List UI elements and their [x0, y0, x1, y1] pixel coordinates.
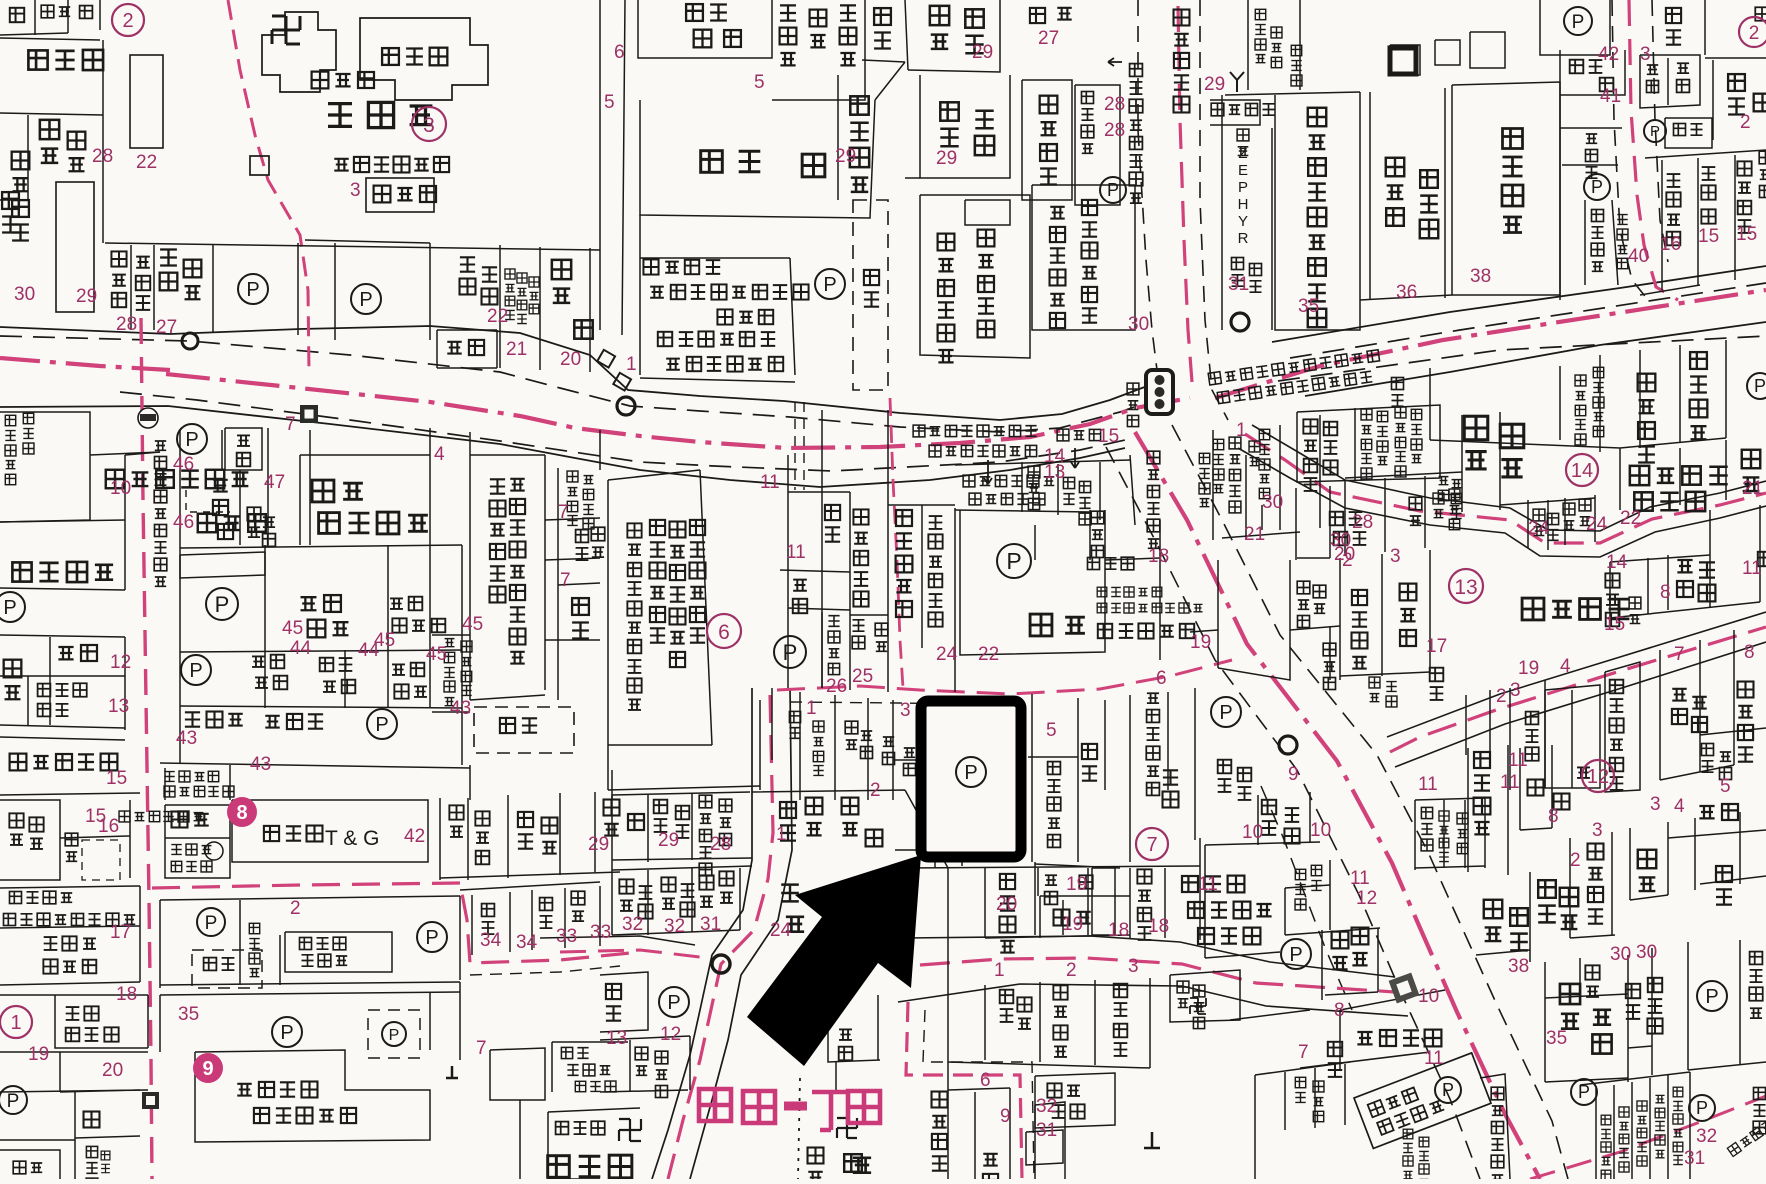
svg-text:11: 11 — [1500, 772, 1520, 793]
svg-text:3: 3 — [1650, 794, 1661, 815]
svg-text:43: 43 — [450, 698, 471, 719]
svg-text:P: P — [667, 992, 680, 1014]
svg-text:5: 5 — [754, 72, 765, 93]
svg-text:2: 2 — [1740, 112, 1751, 133]
svg-text:15: 15 — [1698, 226, 1719, 247]
svg-text:3: 3 — [1390, 546, 1401, 567]
svg-text:38: 38 — [1470, 266, 1491, 287]
svg-text:7: 7 — [1674, 644, 1685, 665]
svg-text:7: 7 — [1146, 834, 1157, 856]
svg-text:44: 44 — [358, 640, 380, 661]
svg-text:31: 31 — [1228, 274, 1249, 295]
svg-text:P: P — [185, 429, 198, 451]
svg-text:22: 22 — [487, 306, 508, 327]
svg-text:14: 14 — [1044, 446, 1066, 467]
svg-text:P: P — [1219, 702, 1232, 724]
svg-text:8: 8 — [236, 802, 247, 824]
svg-text:40: 40 — [1628, 246, 1649, 267]
svg-text:P: P — [1572, 12, 1585, 33]
svg-text:R: R — [1238, 230, 1249, 247]
svg-text:19: 19 — [1062, 914, 1083, 935]
svg-text:1: 1 — [776, 824, 787, 845]
svg-text:30: 30 — [1636, 942, 1657, 963]
svg-text:31: 31 — [1684, 1148, 1705, 1169]
svg-text:19: 19 — [1066, 874, 1087, 895]
svg-text:46: 46 — [173, 512, 194, 533]
svg-text:20: 20 — [102, 1060, 123, 1081]
svg-text:P: P — [3, 597, 16, 619]
svg-text:P: P — [1442, 1080, 1454, 1100]
svg-text:26: 26 — [826, 676, 847, 697]
svg-text:24: 24 — [770, 920, 792, 941]
svg-text:41: 41 — [1600, 86, 1621, 107]
svg-text:3: 3 — [1640, 44, 1651, 65]
svg-text:14: 14 — [1571, 460, 1593, 482]
svg-text:8: 8 — [1548, 806, 1559, 827]
svg-text:P: P — [823, 274, 836, 296]
svg-text:27: 27 — [156, 317, 177, 338]
svg-text:19: 19 — [28, 1044, 49, 1065]
svg-text:30: 30 — [14, 284, 35, 305]
svg-text:7: 7 — [558, 502, 569, 523]
svg-text:29: 29 — [588, 834, 609, 855]
svg-text:42: 42 — [404, 826, 425, 847]
svg-text:P: P — [189, 660, 202, 682]
svg-text:10: 10 — [1242, 822, 1263, 843]
svg-text:11: 11 — [1418, 774, 1438, 795]
svg-text:P: P — [1696, 1098, 1708, 1118]
svg-text:2: 2 — [870, 780, 881, 801]
svg-text:22: 22 — [978, 644, 999, 665]
svg-text:31: 31 — [700, 914, 721, 935]
svg-text:16: 16 — [1660, 234, 1681, 255]
svg-text:46: 46 — [173, 454, 194, 475]
svg-text:12: 12 — [110, 652, 131, 673]
svg-text:29: 29 — [972, 42, 993, 63]
svg-text:28: 28 — [116, 314, 137, 335]
svg-text:21: 21 — [506, 339, 527, 360]
svg-text:P: P — [7, 1091, 20, 1112]
svg-text:P: P — [1578, 1082, 1590, 1102]
svg-text:P: P — [205, 913, 218, 934]
svg-text:21: 21 — [1742, 478, 1763, 499]
svg-text:45: 45 — [426, 644, 447, 665]
svg-text:P: P — [1006, 548, 1021, 574]
svg-text:2: 2 — [1570, 850, 1581, 871]
svg-text:1: 1 — [626, 354, 637, 375]
svg-text:47: 47 — [264, 472, 285, 493]
svg-text:43: 43 — [250, 754, 271, 775]
svg-text:11: 11 — [1198, 874, 1218, 895]
svg-text:32: 32 — [1036, 1096, 1057, 1117]
svg-text:5: 5 — [1720, 776, 1731, 797]
svg-text:11: 11 — [760, 472, 780, 493]
svg-text:35: 35 — [1298, 296, 1319, 317]
svg-text:2: 2 — [290, 898, 301, 919]
svg-text:P: P — [375, 714, 388, 736]
svg-text:27: 27 — [1038, 28, 1059, 49]
svg-text:1: 1 — [806, 698, 817, 719]
svg-text:11: 11 — [1350, 868, 1370, 889]
svg-text:45: 45 — [462, 614, 483, 635]
svg-text:P: P — [1591, 177, 1603, 197]
svg-text:7: 7 — [1298, 1042, 1309, 1063]
svg-text:11: 11 — [1508, 750, 1528, 771]
svg-text:6: 6 — [718, 621, 730, 644]
svg-text:10: 10 — [110, 478, 131, 499]
svg-text:3: 3 — [423, 114, 435, 137]
svg-text:P: P — [783, 640, 798, 665]
svg-text:P: P — [246, 279, 259, 301]
svg-text:2: 2 — [1749, 23, 1760, 44]
svg-text:29: 29 — [1204, 74, 1225, 95]
svg-text:12: 12 — [1587, 766, 1609, 788]
svg-text:35: 35 — [178, 1004, 199, 1025]
svg-text:30: 30 — [1128, 314, 1149, 335]
svg-text:P: P — [389, 1027, 400, 1044]
svg-text:36: 36 — [1396, 282, 1417, 303]
svg-text:34: 34 — [480, 930, 502, 951]
svg-text:43: 43 — [176, 728, 197, 749]
svg-text:30: 30 — [1262, 492, 1283, 513]
svg-text:P: P — [1107, 180, 1119, 200]
svg-text:18: 18 — [116, 984, 137, 1005]
svg-text:8: 8 — [1334, 1000, 1345, 1021]
svg-text:13: 13 — [108, 696, 129, 717]
svg-text:3: 3 — [1592, 820, 1603, 841]
svg-text:24: 24 — [936, 644, 958, 665]
svg-text:19: 19 — [1518, 658, 1539, 679]
svg-text:38: 38 — [1508, 956, 1529, 977]
svg-text:12: 12 — [1356, 888, 1377, 909]
svg-text:6: 6 — [980, 1070, 991, 1091]
svg-text:22: 22 — [1620, 508, 1641, 529]
svg-text:P: P — [1705, 986, 1718, 1008]
svg-text:30: 30 — [1610, 944, 1631, 965]
svg-text:24: 24 — [1586, 514, 1608, 535]
svg-text:20: 20 — [560, 349, 581, 370]
svg-text:13: 13 — [606, 1028, 627, 1049]
svg-text:12: 12 — [660, 1024, 681, 1045]
svg-text:P: P — [215, 592, 230, 617]
svg-text:29: 29 — [76, 286, 97, 307]
svg-text:32: 32 — [1696, 1126, 1717, 1147]
svg-text:P: P — [1289, 944, 1302, 966]
svg-text:29: 29 — [658, 830, 679, 851]
svg-text:1: 1 — [10, 1012, 21, 1034]
svg-text:E: E — [1238, 162, 1248, 179]
svg-text:28: 28 — [1104, 94, 1125, 115]
svg-text:13: 13 — [1454, 576, 1477, 599]
svg-text:8: 8 — [1744, 642, 1755, 663]
svg-text:14: 14 — [1606, 552, 1628, 573]
svg-text:28: 28 — [92, 146, 113, 167]
svg-text:31: 31 — [1036, 1120, 1057, 1141]
svg-text:1: 1 — [994, 960, 1005, 981]
svg-text:P: P — [1650, 123, 1660, 140]
svg-text:28: 28 — [1104, 120, 1125, 141]
svg-text:9: 9 — [1288, 764, 1299, 785]
svg-text:20: 20 — [996, 894, 1017, 915]
svg-text:Z: Z — [1238, 145, 1247, 162]
svg-text:18: 18 — [1148, 916, 1169, 937]
svg-text:4: 4 — [1674, 796, 1685, 817]
svg-text:Y: Y — [1238, 213, 1248, 230]
svg-text:P: P — [1754, 376, 1766, 396]
svg-text:29: 29 — [936, 148, 957, 169]
svg-text:3: 3 — [1128, 956, 1139, 977]
svg-text:9: 9 — [1000, 1106, 1011, 1127]
svg-text:3: 3 — [350, 180, 361, 201]
svg-text:18: 18 — [1148, 546, 1169, 567]
svg-text:45: 45 — [282, 618, 303, 639]
svg-text:11: 11 — [1742, 558, 1762, 579]
svg-text:11: 11 — [786, 542, 806, 563]
svg-text:6: 6 — [614, 42, 625, 63]
svg-text:15: 15 — [1604, 614, 1625, 635]
svg-text:1: 1 — [1236, 420, 1247, 441]
svg-text:5: 5 — [1046, 720, 1057, 741]
svg-text:32: 32 — [622, 914, 643, 935]
svg-text:P: P — [359, 289, 372, 311]
svg-text:28: 28 — [710, 834, 731, 855]
svg-text:15: 15 — [106, 768, 127, 789]
svg-text:15: 15 — [1736, 224, 1757, 245]
svg-text:6: 6 — [1156, 668, 1167, 689]
svg-text:P: P — [964, 762, 977, 784]
svg-text:17: 17 — [1426, 636, 1447, 657]
svg-text:19: 19 — [1190, 632, 1211, 653]
svg-text:3: 3 — [1510, 680, 1521, 701]
svg-text:15: 15 — [1098, 426, 1119, 447]
svg-text:7: 7 — [285, 414, 296, 435]
svg-text:P: P — [1238, 179, 1248, 196]
svg-text:5: 5 — [604, 92, 615, 113]
svg-text:34: 34 — [516, 932, 538, 953]
svg-text:7: 7 — [476, 1038, 487, 1059]
svg-text:11: 11 — [1424, 1048, 1444, 1069]
svg-text:21: 21 — [1244, 524, 1265, 545]
svg-text:2: 2 — [1496, 686, 1507, 707]
svg-text:2: 2 — [1066, 960, 1077, 981]
svg-text:42: 42 — [1598, 44, 1619, 65]
svg-text:18: 18 — [1108, 920, 1129, 941]
svg-text:H: H — [1238, 196, 1249, 213]
svg-text:3: 3 — [900, 700, 911, 721]
svg-text:4: 4 — [1560, 656, 1571, 677]
svg-text:32: 32 — [664, 916, 685, 937]
svg-text:4: 4 — [434, 444, 445, 465]
svg-text:16: 16 — [98, 816, 119, 837]
svg-text:T & G: T & G — [325, 827, 379, 850]
svg-text:9: 9 — [202, 1058, 213, 1080]
svg-text:2: 2 — [122, 10, 133, 32]
svg-text:P: P — [425, 927, 438, 949]
svg-text:17: 17 — [110, 922, 131, 943]
svg-text:25: 25 — [852, 666, 873, 687]
svg-text:22: 22 — [136, 152, 157, 173]
svg-text:28: 28 — [1352, 512, 1373, 533]
svg-text:33: 33 — [556, 926, 577, 947]
svg-text:10: 10 — [1418, 986, 1439, 1007]
svg-text:35: 35 — [1546, 1028, 1567, 1049]
svg-text:8: 8 — [1660, 582, 1671, 603]
svg-text:44: 44 — [290, 638, 312, 659]
svg-text:24: 24 — [1528, 518, 1550, 539]
svg-text:10: 10 — [1310, 820, 1331, 841]
svg-text:29: 29 — [835, 146, 856, 167]
svg-text:P: P — [280, 1022, 293, 1044]
svg-text:20: 20 — [1334, 544, 1355, 565]
svg-text:33: 33 — [590, 922, 611, 943]
svg-text:7: 7 — [560, 570, 571, 591]
